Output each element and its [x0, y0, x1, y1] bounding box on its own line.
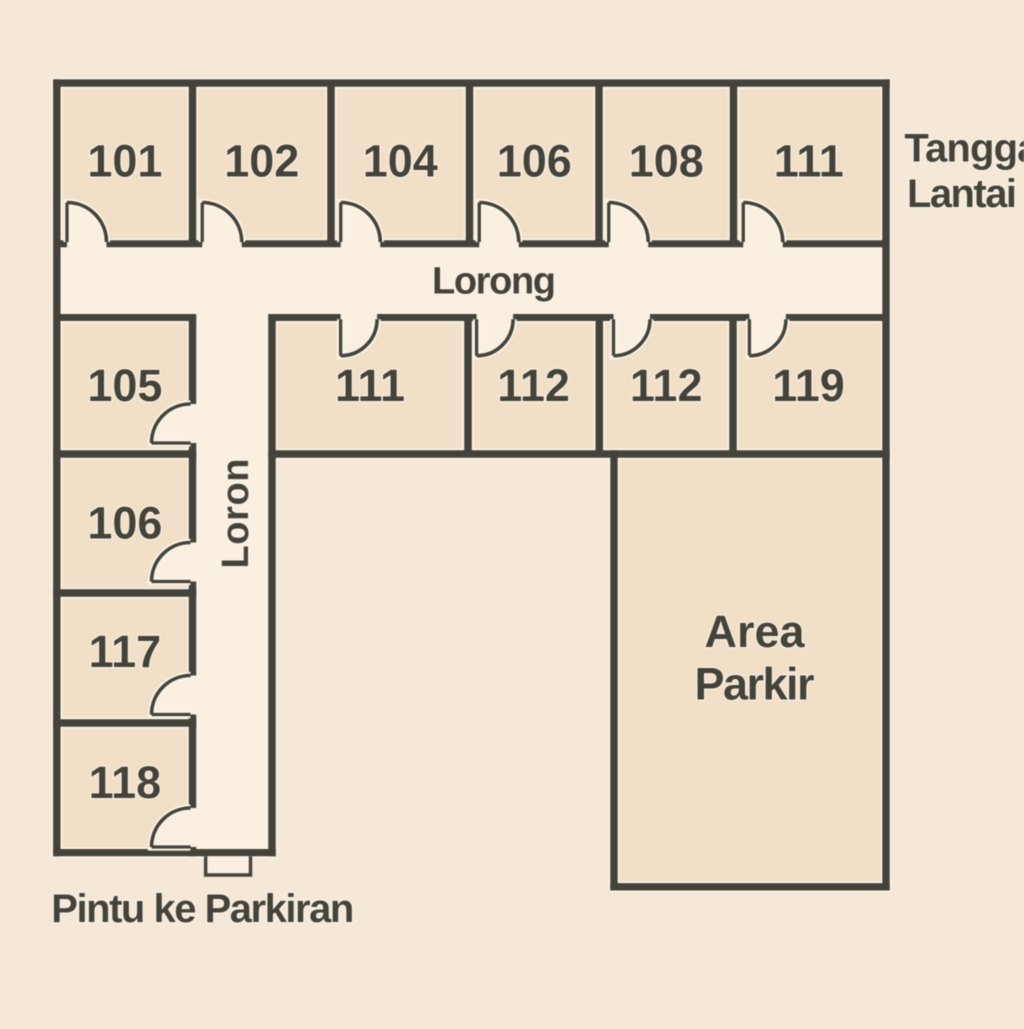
svg-text:104: 104	[363, 136, 438, 187]
svg-text:Pintu ke Parkiran: Pintu ke Parkiran	[51, 887, 354, 931]
svg-text:119: 119	[772, 360, 845, 411]
svg-text:108: 108	[629, 136, 704, 187]
svg-text:Lantai: Lantai	[907, 172, 1017, 216]
svg-text:Loron: Loron	[215, 459, 257, 569]
svg-text:111: 111	[335, 360, 405, 411]
svg-text:Lorong: Lorong	[432, 261, 556, 303]
svg-text:Area: Area	[704, 606, 805, 657]
svg-text:102: 102	[224, 136, 299, 187]
svg-text:106: 106	[87, 497, 162, 548]
svg-text:106: 106	[497, 136, 572, 187]
svg-text:112: 112	[630, 360, 703, 411]
svg-text:105: 105	[87, 360, 162, 411]
svg-text:Parkir: Parkir	[695, 659, 815, 710]
svg-text:117: 117	[89, 626, 162, 677]
svg-text:112: 112	[497, 360, 570, 411]
svg-text:111: 111	[774, 136, 844, 187]
svg-text:101: 101	[87, 136, 162, 187]
svg-text:118: 118	[89, 757, 162, 808]
svg-text:Tangga: Tangga	[904, 127, 1024, 171]
